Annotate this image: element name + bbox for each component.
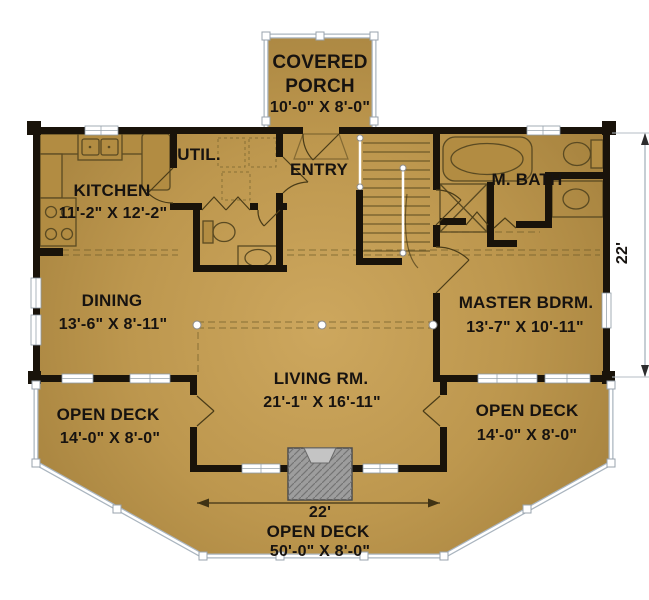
toilet-tank (591, 140, 603, 168)
room-dims-master-bdrm: 13'-7" X 10'-11" (466, 319, 584, 336)
wall-segment (356, 190, 363, 265)
railing-post (607, 459, 615, 467)
wall-segment (487, 182, 494, 247)
support-post (193, 321, 201, 329)
wall-segment (440, 375, 447, 395)
wall-segment (118, 127, 303, 134)
wall-segment (276, 193, 283, 272)
railing-post (199, 552, 207, 560)
room-dims-kitchen: 11'-2" X 12'-2" (59, 205, 168, 222)
railing-post (262, 32, 270, 40)
room-dims-covered-porch: 10'-0" X 8'-0" (270, 99, 370, 116)
railing-post (32, 381, 40, 389)
railing-post (32, 459, 40, 467)
room-label-kitchen: KITCHEN (74, 181, 151, 200)
room-dims-living-rm: 21'-1" X 16'-11" (263, 394, 381, 411)
wall-segment (440, 218, 466, 225)
room-label-entry: ENTRY (290, 160, 348, 179)
sink-drain (108, 146, 111, 149)
room-dims-open-deck-right: 14'-0" X 8'-0" (477, 427, 577, 444)
room-label-master-bdrm: MASTER BDRM. (459, 293, 594, 312)
wall-segment (33, 256, 40, 278)
wall-segment (93, 375, 130, 382)
wall-segment (494, 240, 517, 247)
room-label-covered-porch: PORCH (285, 76, 355, 97)
wall-segment (250, 203, 258, 210)
railing-post (607, 381, 615, 389)
support-post (429, 321, 437, 329)
handrail-post (357, 135, 363, 141)
wall-segment (339, 127, 527, 134)
room-label-open-deck-bottom: OPEN DECK (267, 522, 370, 541)
handrail-post (357, 184, 363, 190)
toilet-tank (203, 221, 213, 243)
room-label-util: UTIL. (177, 145, 221, 164)
room-dims-dining: 13'-6" X 8'-11" (59, 316, 168, 333)
dimension-label-right-depth: 22' (614, 242, 631, 264)
wall-segment (190, 375, 197, 395)
handrail-post (400, 165, 406, 171)
room-dims-open-deck-bottom: 50'-0" X 8'-0" (270, 543, 370, 560)
wall-segment (603, 134, 610, 293)
support-post (318, 321, 326, 329)
wall-segment (398, 465, 447, 472)
floor-plan-drawing: COVERED PORCH 10'-0" X 8'-0" UTIL. ENTRY… (0, 0, 649, 600)
railing-post (316, 32, 324, 40)
wall-segment (33, 308, 40, 315)
room-label-open-deck-left: OPEN DECK (57, 405, 160, 424)
wall-segment (193, 265, 287, 272)
wall-segment (433, 225, 440, 247)
sink-drain (89, 146, 92, 149)
wall-segment (433, 134, 440, 190)
wall-segment (356, 258, 402, 265)
fireplace (288, 448, 352, 500)
kitchen-sink (78, 134, 122, 160)
railing-post (370, 117, 378, 125)
corner-block (27, 121, 41, 135)
dimension-label-living-width: 22' (309, 504, 331, 521)
room-label-dining: DINING (82, 291, 143, 310)
wall-segment (33, 134, 40, 248)
room-label-open-deck-right: OPEN DECK (476, 401, 579, 420)
wing-wall (33, 248, 63, 256)
wall-segment (537, 375, 545, 382)
wall-segment (190, 465, 242, 472)
wall-segment (193, 210, 200, 265)
wall-segment (276, 134, 283, 157)
wall-segment (170, 203, 202, 210)
handrail-post (400, 250, 406, 256)
room-dims-open-deck-left: 14'-0" X 8'-0" (60, 430, 160, 447)
dimension-arrow (641, 133, 649, 145)
railing-post (370, 32, 378, 40)
railing-post (523, 505, 531, 513)
wall-segment (433, 293, 440, 382)
room-label-living-rm: LIVING RM. (274, 369, 369, 388)
railing-post (262, 117, 270, 125)
wall-segment (170, 134, 177, 168)
dimension-arrow (641, 365, 649, 377)
railing-post (440, 552, 448, 560)
railing-post (113, 505, 121, 513)
floor-plan-page: COVERED PORCH 10'-0" X 8'-0" UTIL. ENTRY… (0, 0, 649, 600)
room-label-covered-porch: COVERED (272, 52, 367, 73)
kitchen-counter (40, 154, 62, 198)
room-label-m-bath: M. BATH (492, 170, 563, 189)
